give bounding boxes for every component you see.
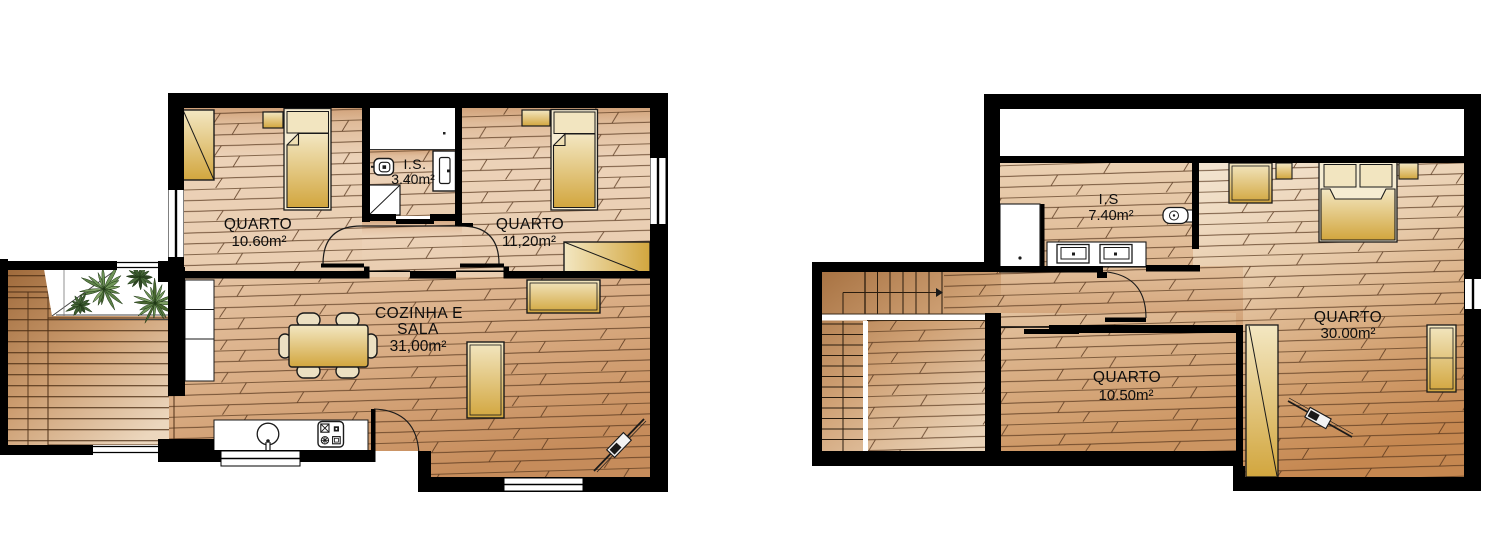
svg-text:30.00m²: 30.00m² [1320,325,1375,342]
svg-text:QUARTO: QUARTO [496,216,564,233]
svg-text:QUARTO: QUARTO [1093,369,1161,386]
svg-text:11,20m²: 11,20m² [502,233,556,250]
svg-text:SALA: SALA [397,321,439,338]
svg-text:COZINHA E: COZINHA E [375,305,463,322]
svg-text:10.50m²: 10.50m² [1098,387,1153,404]
svg-text:QUARTO: QUARTO [224,216,292,233]
svg-text:31,00m²: 31,00m² [390,338,447,355]
svg-text:3.40m²: 3.40m² [391,171,435,187]
svg-text:I.S: I.S [1099,192,1120,208]
svg-text:QUARTO: QUARTO [1314,309,1382,326]
svg-text:I.S.: I.S. [403,156,426,172]
svg-text:10.60m²: 10.60m² [231,233,286,250]
svg-text:7.40m²: 7.40m² [1088,208,1133,224]
